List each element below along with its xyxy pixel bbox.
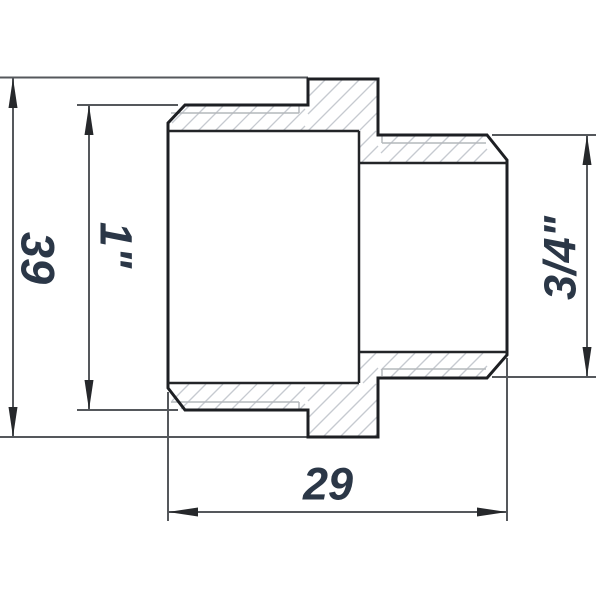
dim-label-overall-height: 39 xyxy=(12,232,65,284)
arrow-up-34 xyxy=(583,135,592,165)
dimension-lines xyxy=(9,78,592,517)
arrow-left-29 xyxy=(168,508,198,517)
arrow-down-34 xyxy=(583,347,592,377)
fitting-section-drawing: 39 1" 3/4" 29 xyxy=(0,0,600,600)
dim-label-thread-right: 3/4" xyxy=(535,215,586,300)
drawing-canvas: 39 1" 3/4" 29 xyxy=(0,0,600,600)
arrow-right-29 xyxy=(477,508,507,517)
dim-label-thread-left: 1" xyxy=(91,222,142,269)
dim-label-overall-length: 29 xyxy=(302,459,353,510)
arrow-up-1in xyxy=(85,105,94,135)
arrow-down-1in xyxy=(85,380,94,410)
arrow-up-39 xyxy=(9,78,18,108)
arrow-down-39 xyxy=(9,407,18,437)
bore-profile xyxy=(168,131,507,383)
fitting-outline xyxy=(168,79,507,437)
